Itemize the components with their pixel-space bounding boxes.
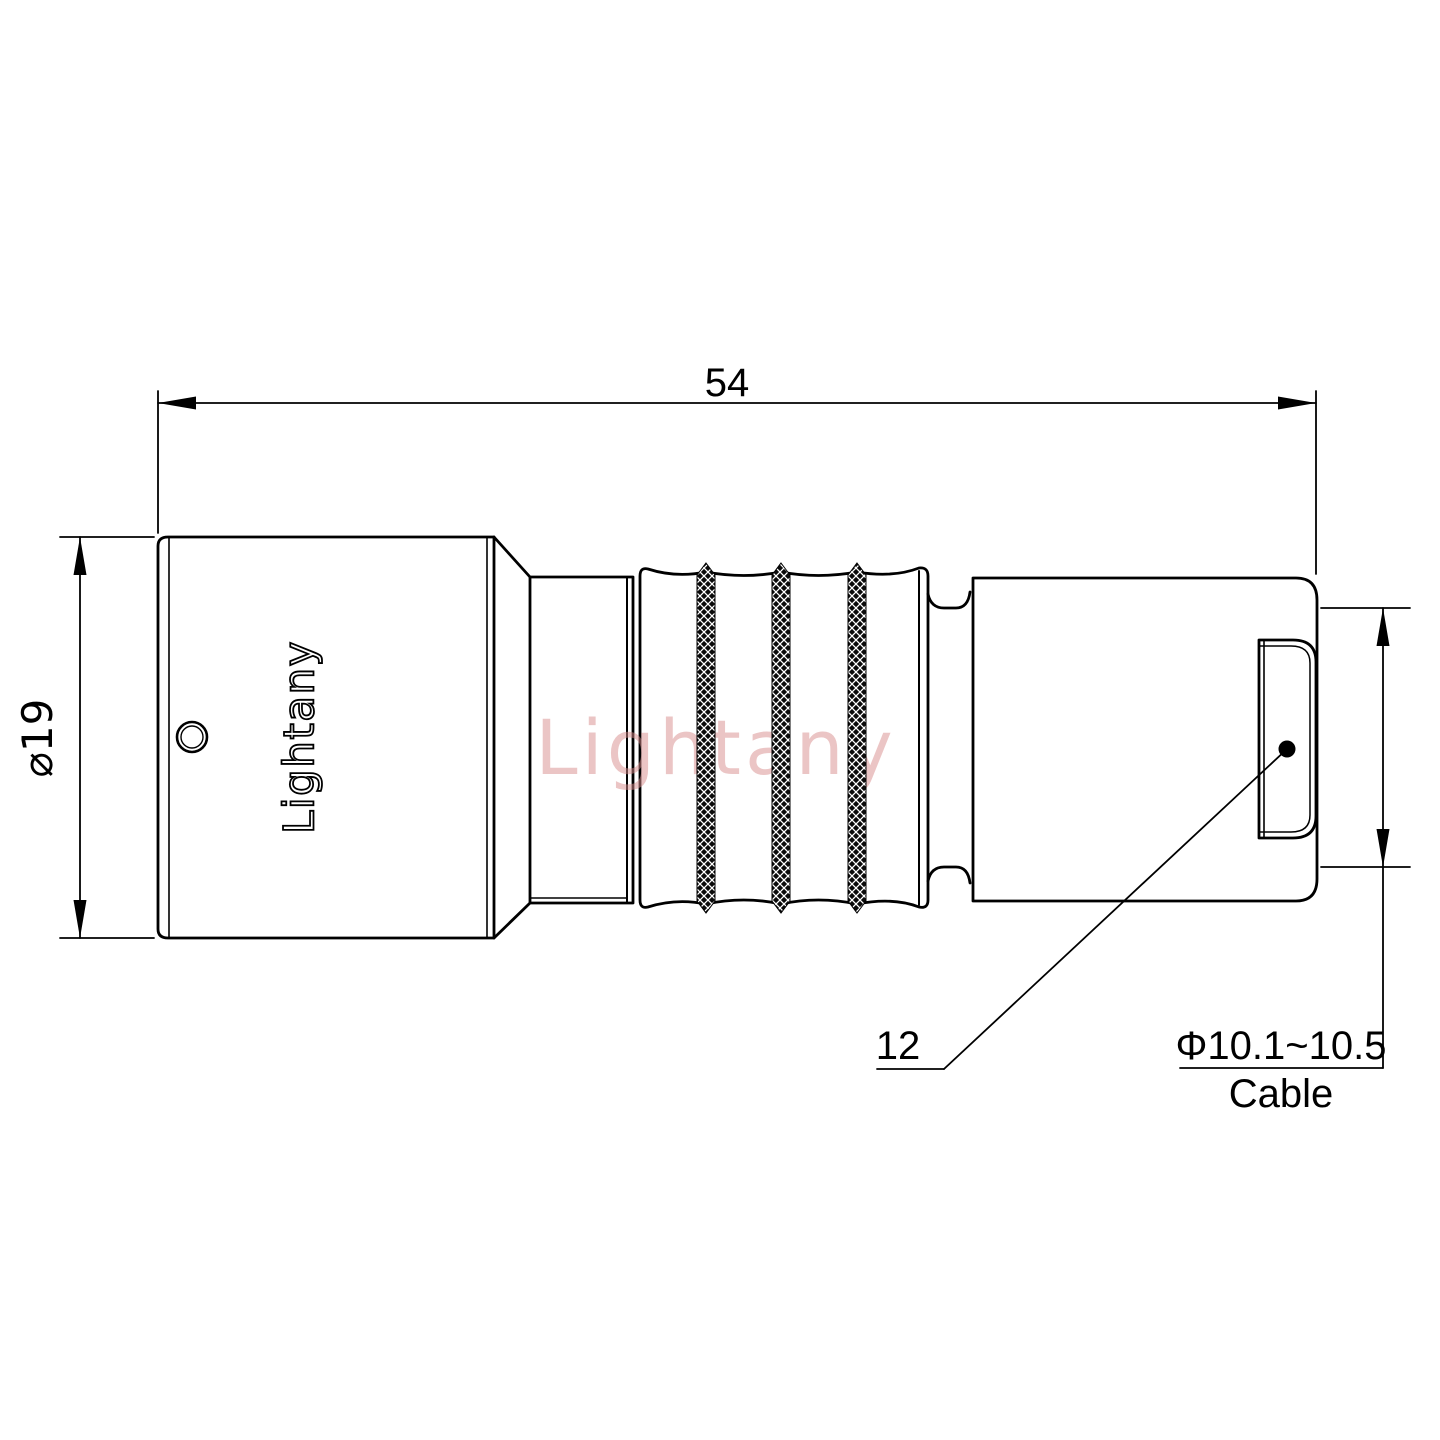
cable-bushing <box>1259 640 1316 838</box>
dim-dia-label: ⌀19 <box>13 699 62 778</box>
watermark: Lightany <box>535 703 896 792</box>
dim-cable-word-label: Cable <box>1229 1072 1334 1116</box>
body-taper-bottom <box>494 903 530 938</box>
connector-technical-drawing: Lightany Lightany 54 ⌀19 <box>0 0 1440 1440</box>
dim-length-arrow-left <box>158 397 196 410</box>
dim-dia-arrow-top <box>74 537 87 575</box>
dim-cable-range-label: Φ10.1~10.5 <box>1176 1024 1387 1068</box>
drawing-canvas: Lightany Lightany 54 ⌀19 <box>0 0 1440 1440</box>
leader-12-label: 12 <box>876 1024 921 1068</box>
knurl-band-3 <box>848 563 866 913</box>
knurl-band-1 <box>697 563 715 913</box>
brand-logo: Lightany <box>275 640 324 834</box>
knurl-band-2 <box>772 563 790 913</box>
dim-dia-arrow-bottom <box>74 900 87 938</box>
dim-length-arrow-right <box>1278 397 1316 410</box>
body-taper-top <box>494 537 530 577</box>
dim-body-diameter: ⌀19 <box>13 537 154 938</box>
dim-length-label: 54 <box>705 361 750 405</box>
neck-groove-top <box>928 592 970 608</box>
dim-cable-arrow-top <box>1377 608 1390 646</box>
neck-groove-bottom <box>928 867 970 883</box>
front-body <box>158 537 494 938</box>
dim-cable-arrow-bottom <box>1377 829 1390 867</box>
rear-parts-group <box>928 578 1317 901</box>
